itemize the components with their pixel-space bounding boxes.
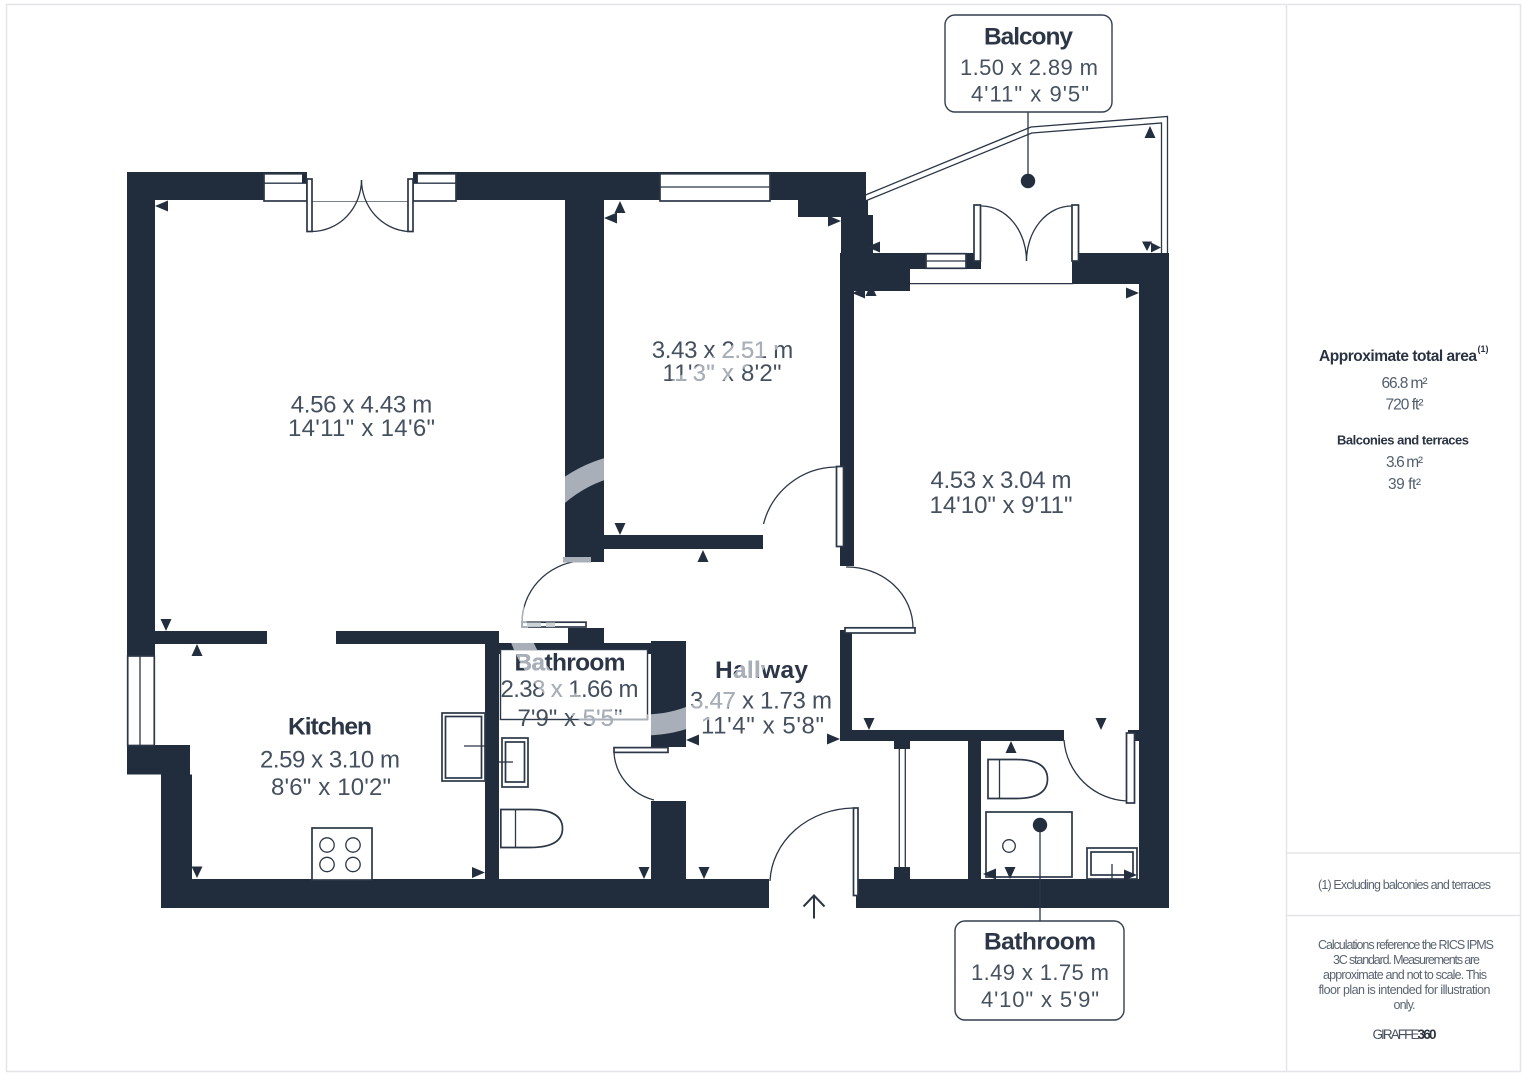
svg-text:3C standard. Measurements are: 3C standard. Measurements are	[1333, 953, 1480, 967]
svg-text:8'6" x 10'2": 8'6" x 10'2"	[271, 774, 391, 801]
svg-text:Kitchen: Kitchen	[288, 714, 372, 741]
svg-text:approximate and not to scale.: approximate and not to scale. This	[1323, 968, 1487, 982]
svg-text:14'11" x 14'6": 14'11" x 14'6"	[288, 415, 435, 442]
svg-text:1.49 x 1.75 m: 1.49 x 1.75 m	[971, 960, 1109, 985]
svg-text:14'10" x 9'11": 14'10" x 9'11"	[930, 492, 1073, 519]
svg-text:3.6 m²: 3.6 m²	[1386, 454, 1423, 471]
svg-text:GIRAFFE360: GIRAFFE360	[1372, 1027, 1436, 1042]
svg-text:Approximate total area: Approximate total area	[1319, 348, 1477, 365]
svg-text:only.: only.	[1394, 998, 1416, 1012]
svg-text:Balconies and terraces: Balconies and terraces	[1337, 433, 1469, 448]
svg-text:4'10" x 5'9": 4'10" x 5'9"	[981, 987, 1099, 1012]
svg-text:1.50 x 2.89 m: 1.50 x 2.89 m	[960, 55, 1098, 80]
svg-text:(1) Excluding balconies and te: (1) Excluding balconies and terraces	[1318, 878, 1491, 892]
svg-text:(1): (1)	[1478, 344, 1489, 354]
svg-text:39 ft²: 39 ft²	[1388, 476, 1421, 493]
svg-text:11'4" x 5'8": 11'4" x 5'8"	[701, 713, 824, 740]
svg-text:720 ft²: 720 ft²	[1386, 397, 1424, 414]
svg-text:floor plan is intended for ill: floor plan is intended for illustration	[1319, 983, 1491, 997]
svg-text:4'11" x 9'5": 4'11" x 9'5"	[971, 82, 1089, 107]
svg-text:66.8 m²: 66.8 m²	[1382, 375, 1428, 392]
svg-text:Calculations reference the RIC: Calculations reference the RICS IPMS	[1318, 938, 1494, 952]
svg-text:2.59 x 3.10 m: 2.59 x 3.10 m	[260, 747, 400, 774]
svg-text:Balcony: Balcony	[984, 24, 1073, 51]
svg-text:Bathroom: Bathroom	[984, 929, 1096, 956]
svg-text:4.53 x 3.04 m: 4.53 x 3.04 m	[931, 467, 1072, 494]
